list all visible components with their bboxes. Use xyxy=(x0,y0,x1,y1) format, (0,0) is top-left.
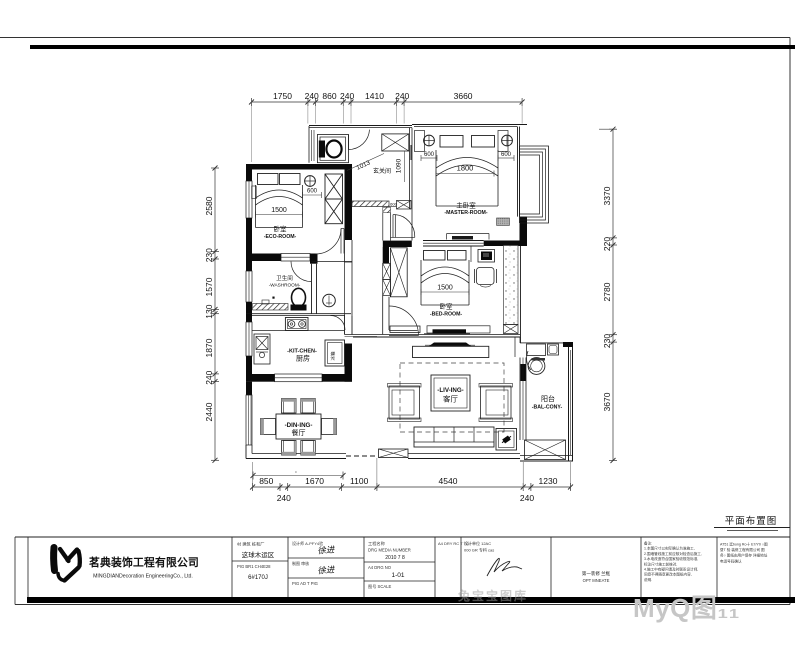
svg-text:昼T 验 装修工程有限公司 图: 昼T 验 装修工程有限公司 图 xyxy=(720,547,765,552)
svg-text:这球木运区: 这球木运区 xyxy=(242,550,275,559)
svg-text:务○ 图纸由用户保存 详细地址: 务○ 图纸由用户保存 详细地址 xyxy=(720,553,768,558)
svg-text:卧室: 卧室 xyxy=(440,302,454,311)
svg-text:1870: 1870 xyxy=(204,338,214,357)
svg-text:客厅: 客厅 xyxy=(443,394,458,404)
svg-text:PIG AD T PIG: PIG AD T PIG xyxy=(292,581,318,586)
svg-text:240: 240 xyxy=(277,493,291,503)
svg-text:1410: 1410 xyxy=(365,91,384,101)
svg-text:600: 600 xyxy=(307,189,318,195)
svg-text:玄关间: 玄关间 xyxy=(373,167,391,175)
svg-text:A4 DRG NO: A4 DRG NO xyxy=(368,565,392,570)
svg-text:2010 7 8: 2010 7 8 xyxy=(385,555,405,561)
svg-text:1670: 1670 xyxy=(305,476,324,486)
svg-text:6#170J: 6#170J xyxy=(248,575,268,581)
svg-text:1500: 1500 xyxy=(271,207,287,214)
svg-text:-DIN-ING-: -DIN-ING- xyxy=(285,422,313,429)
svg-text:МуQ图₁₁: МуQ图₁₁ xyxy=(633,593,740,623)
svg-text:徐进: 徐进 xyxy=(317,564,336,575)
svg-text:3670: 3670 xyxy=(602,392,612,411)
svg-text:工程名称: 工程名称 xyxy=(368,540,385,547)
svg-text:4.施工中有疑问请及时联系设计师,: 4.施工中有疑问请及时联系设计师, xyxy=(644,567,698,572)
svg-text:850: 850 xyxy=(259,476,273,486)
svg-text:第一装修 兰框: 第一装修 兰框 xyxy=(582,570,611,577)
svg-text:村 建筑 栋和厂: 村 建筑 栋和厂 xyxy=(237,541,264,548)
svg-text:1500: 1500 xyxy=(437,285,453,292)
svg-text:说明.: 说明. xyxy=(644,577,652,582)
svg-text:4540: 4540 xyxy=(439,476,458,486)
svg-text:■: ■ xyxy=(272,295,275,300)
svg-text:1090: 1090 xyxy=(396,158,403,173)
svg-text:240: 240 xyxy=(520,493,534,503)
svg-text:600: 600 xyxy=(424,152,435,158)
svg-text:1100: 1100 xyxy=(350,476,369,486)
svg-text:-WASHROOM-: -WASHROOM- xyxy=(269,283,301,288)
svg-text:1750: 1750 xyxy=(273,91,292,101)
svg-text:同意不得随意更改本图纸内容,: 同意不得随意更改本图纸内容, xyxy=(644,572,692,577)
svg-text:茗典装饰工程有限公司: 茗典装饰工程有限公司 xyxy=(89,555,199,569)
svg-text:860: 860 xyxy=(322,91,336,101)
svg-text:PIG BR1 CH4E28: PIG BR1 CH4E28 xyxy=(237,564,271,569)
svg-text:标注尺寸施工前核对,: 标注尺寸施工前核对, xyxy=(644,561,677,566)
svg-text:-KIT-CHEN-: -KIT-CHEN- xyxy=(287,349,317,355)
svg-text:3660: 3660 xyxy=(454,91,473,101)
svg-text:阳台: 阳台 xyxy=(541,394,555,403)
svg-text:230: 230 xyxy=(204,248,214,262)
svg-text:230: 230 xyxy=(602,334,612,348)
svg-text:1.本图尺寸以实际确认为准施工,: 1.本图尺寸以实际确认为准施工, xyxy=(644,546,695,551)
svg-text:备注:: 备注: xyxy=(644,541,652,546)
svg-text:兔宝宝图库: 兔宝宝图库 xyxy=(457,588,528,603)
svg-text:DRG MEDIA NUMBER: DRG MEDIA NUMBER xyxy=(368,548,411,553)
svg-text:OPT MNEATE: OPT MNEATE xyxy=(583,578,610,583)
svg-text:2.围墙管线施工前应核对检查后施工,: 2.围墙管线施工前应核对检查后施工, xyxy=(644,551,702,556)
svg-text:3370: 3370 xyxy=(602,186,612,205)
svg-text:厨房: 厨房 xyxy=(296,354,310,363)
svg-text:000 GR 专科 cas: 000 GR 专科 cas xyxy=(464,547,494,553)
svg-text:2580: 2580 xyxy=(204,196,214,215)
svg-text:220: 220 xyxy=(602,237,612,251)
svg-text:-LIV-ING-: -LIV-ING- xyxy=(437,387,463,394)
svg-text:1800: 1800 xyxy=(457,164,474,173)
svg-text:130: 130 xyxy=(204,304,214,318)
svg-text:1570: 1570 xyxy=(204,277,214,296)
svg-text:徐进: 徐进 xyxy=(317,544,336,555)
svg-text:主卧室: 主卧室 xyxy=(456,201,476,210)
svg-text:2780: 2780 xyxy=(602,282,612,301)
svg-text:-MASTER-ROOM-: -MASTER-ROOM- xyxy=(444,210,487,216)
svg-text:设计单位 12AC: 设计单位 12AC xyxy=(464,540,491,546)
svg-text:卫生间: 卫生间 xyxy=(276,274,293,282)
svg-text:1230: 1230 xyxy=(539,476,558,486)
svg-text:餐厅: 餐厅 xyxy=(292,428,306,437)
svg-text:240: 240 xyxy=(340,91,354,101)
svg-text:制图 审核: 制图 审核 xyxy=(292,560,309,566)
svg-text:240: 240 xyxy=(395,91,409,101)
svg-text:MINGDIANDecoration Engineering: MINGDIANDecoration EngineeringCo., Ltd. xyxy=(93,574,193,580)
svg-text:240: 240 xyxy=(204,370,214,384)
svg-text:AT51 廷bong Ro十 E7/Y0 ○图: AT51 廷bong Ro十 E7/Y0 ○图 xyxy=(720,542,768,547)
svg-text:2440: 2440 xyxy=(204,402,214,421)
svg-text:-BAL-CONY-: -BAL-CONY- xyxy=(532,405,563,411)
svg-text:240: 240 xyxy=(305,91,319,101)
svg-text:-ECO-ROOM-: -ECO-ROOM- xyxy=(264,234,297,240)
svg-text:电话号码确认: 电话号码确认 xyxy=(720,558,742,563)
svg-text:冰箱: 冰箱 xyxy=(330,351,337,360)
svg-text:600: 600 xyxy=(501,152,512,158)
svg-text:-BED-ROOM-: -BED-ROOM- xyxy=(430,312,463,318)
svg-text:3.水电改造符合国家验收规范标准,: 3.水电改造符合国家验收规范标准, xyxy=(644,556,698,561)
svg-text:1-01: 1-01 xyxy=(391,572,404,579)
svg-text:600: 600 xyxy=(390,202,397,207)
svg-text:平面布置图: 平面布置图 xyxy=(725,515,778,527)
svg-text:卧室: 卧室 xyxy=(274,224,288,233)
